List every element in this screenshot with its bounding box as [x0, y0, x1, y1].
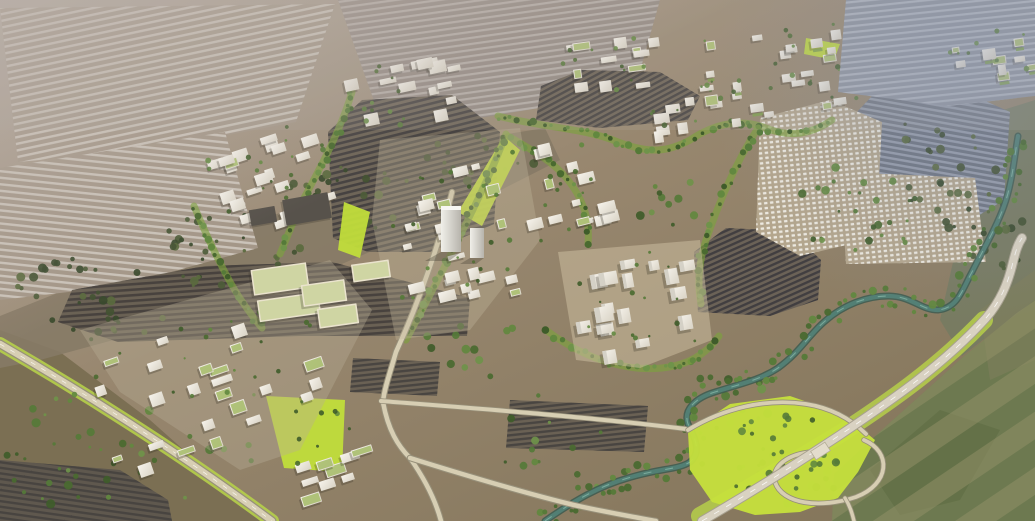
aerial-masterplan-image — [0, 0, 1035, 521]
masterplan-svg — [0, 0, 1035, 521]
